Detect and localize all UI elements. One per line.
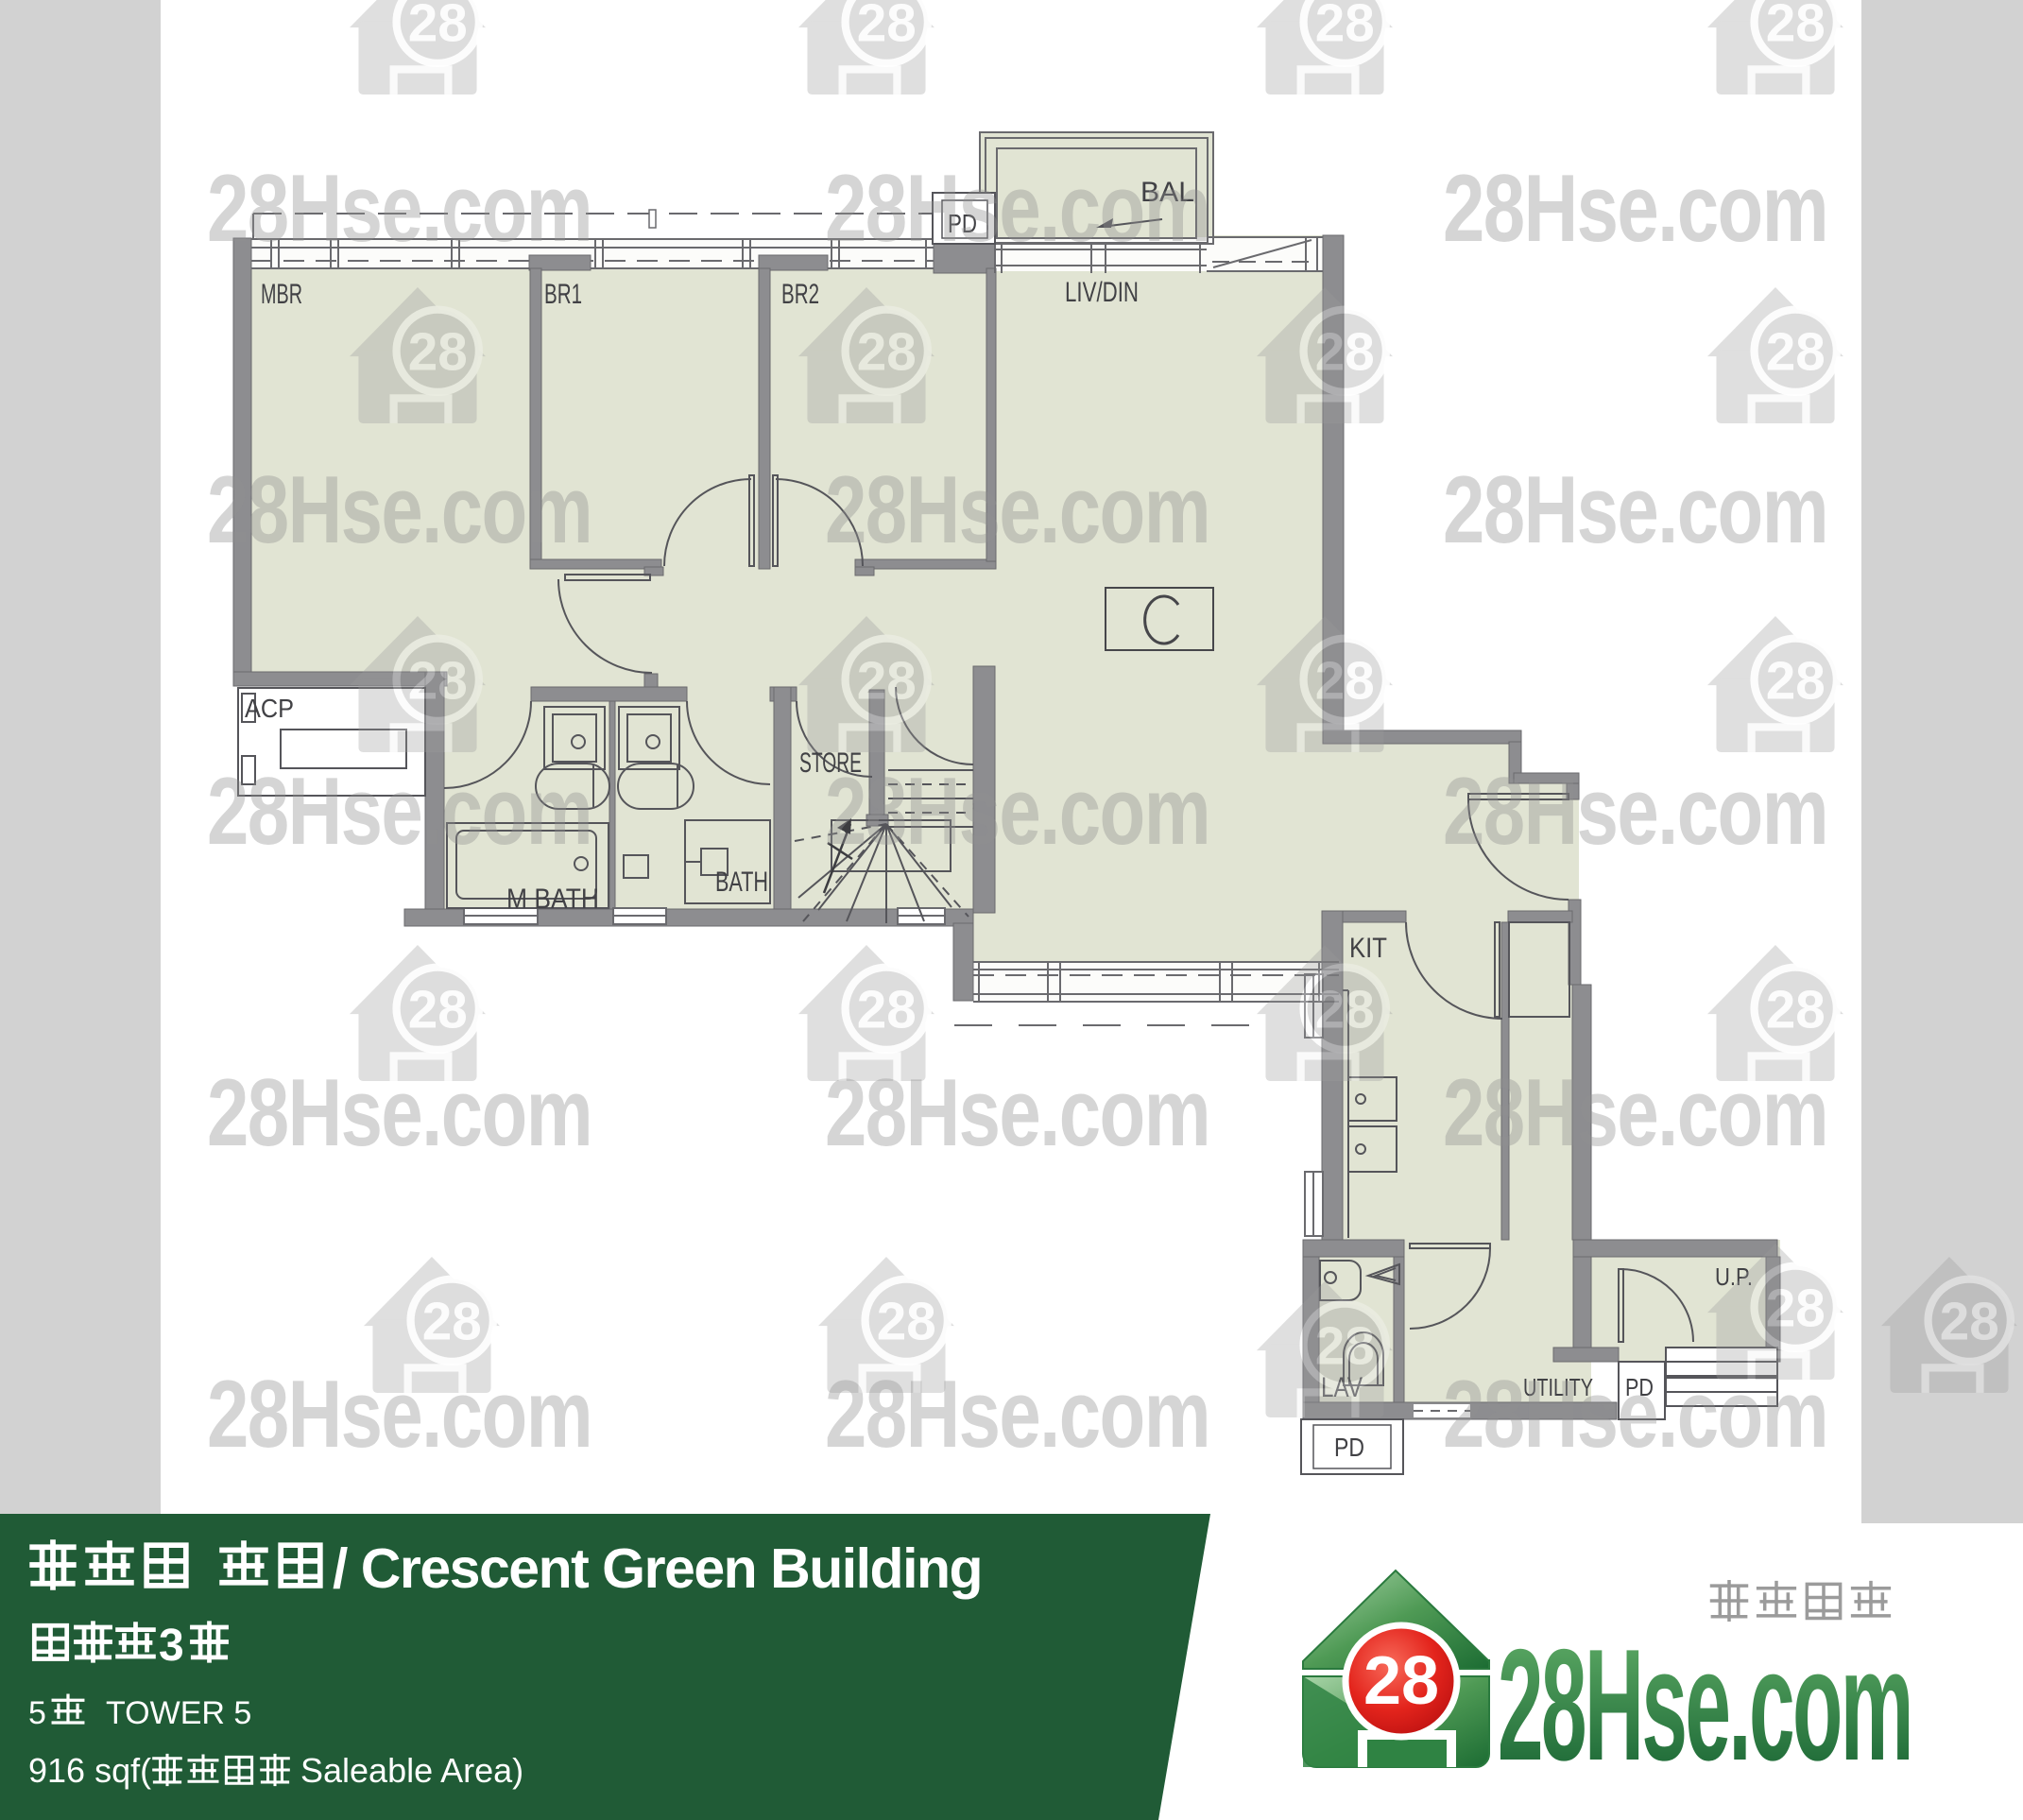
- svg-text:BR1: BR1: [544, 279, 582, 310]
- svg-text:28Hse.com: 28Hse.com: [1498, 1617, 1912, 1794]
- svg-text:KIT: KIT: [1349, 933, 1387, 964]
- svg-text:5: 5: [28, 1695, 46, 1731]
- svg-text:BATH: BATH: [715, 867, 768, 898]
- svg-text:MBR: MBR: [261, 279, 302, 310]
- svg-text:LIV/DIN: LIV/DIN: [1065, 277, 1139, 308]
- svg-text:TOWER 5: TOWER 5: [106, 1695, 251, 1731]
- svg-text:ACP: ACP: [245, 694, 294, 723]
- svg-text:28: 28: [1363, 1643, 1439, 1719]
- svg-text:BR2: BR2: [781, 279, 819, 310]
- svg-text:M BATH: M BATH: [506, 884, 599, 915]
- svg-text:PD: PD: [1334, 1433, 1364, 1462]
- svg-text:/ Crescent Green Building: / Crescent Green Building: [333, 1537, 982, 1600]
- svg-text:Saleable Area): Saleable Area): [300, 1751, 523, 1790]
- svg-text:916 sqf(: 916 sqf(: [28, 1751, 151, 1790]
- svg-text:3: 3: [159, 1621, 184, 1671]
